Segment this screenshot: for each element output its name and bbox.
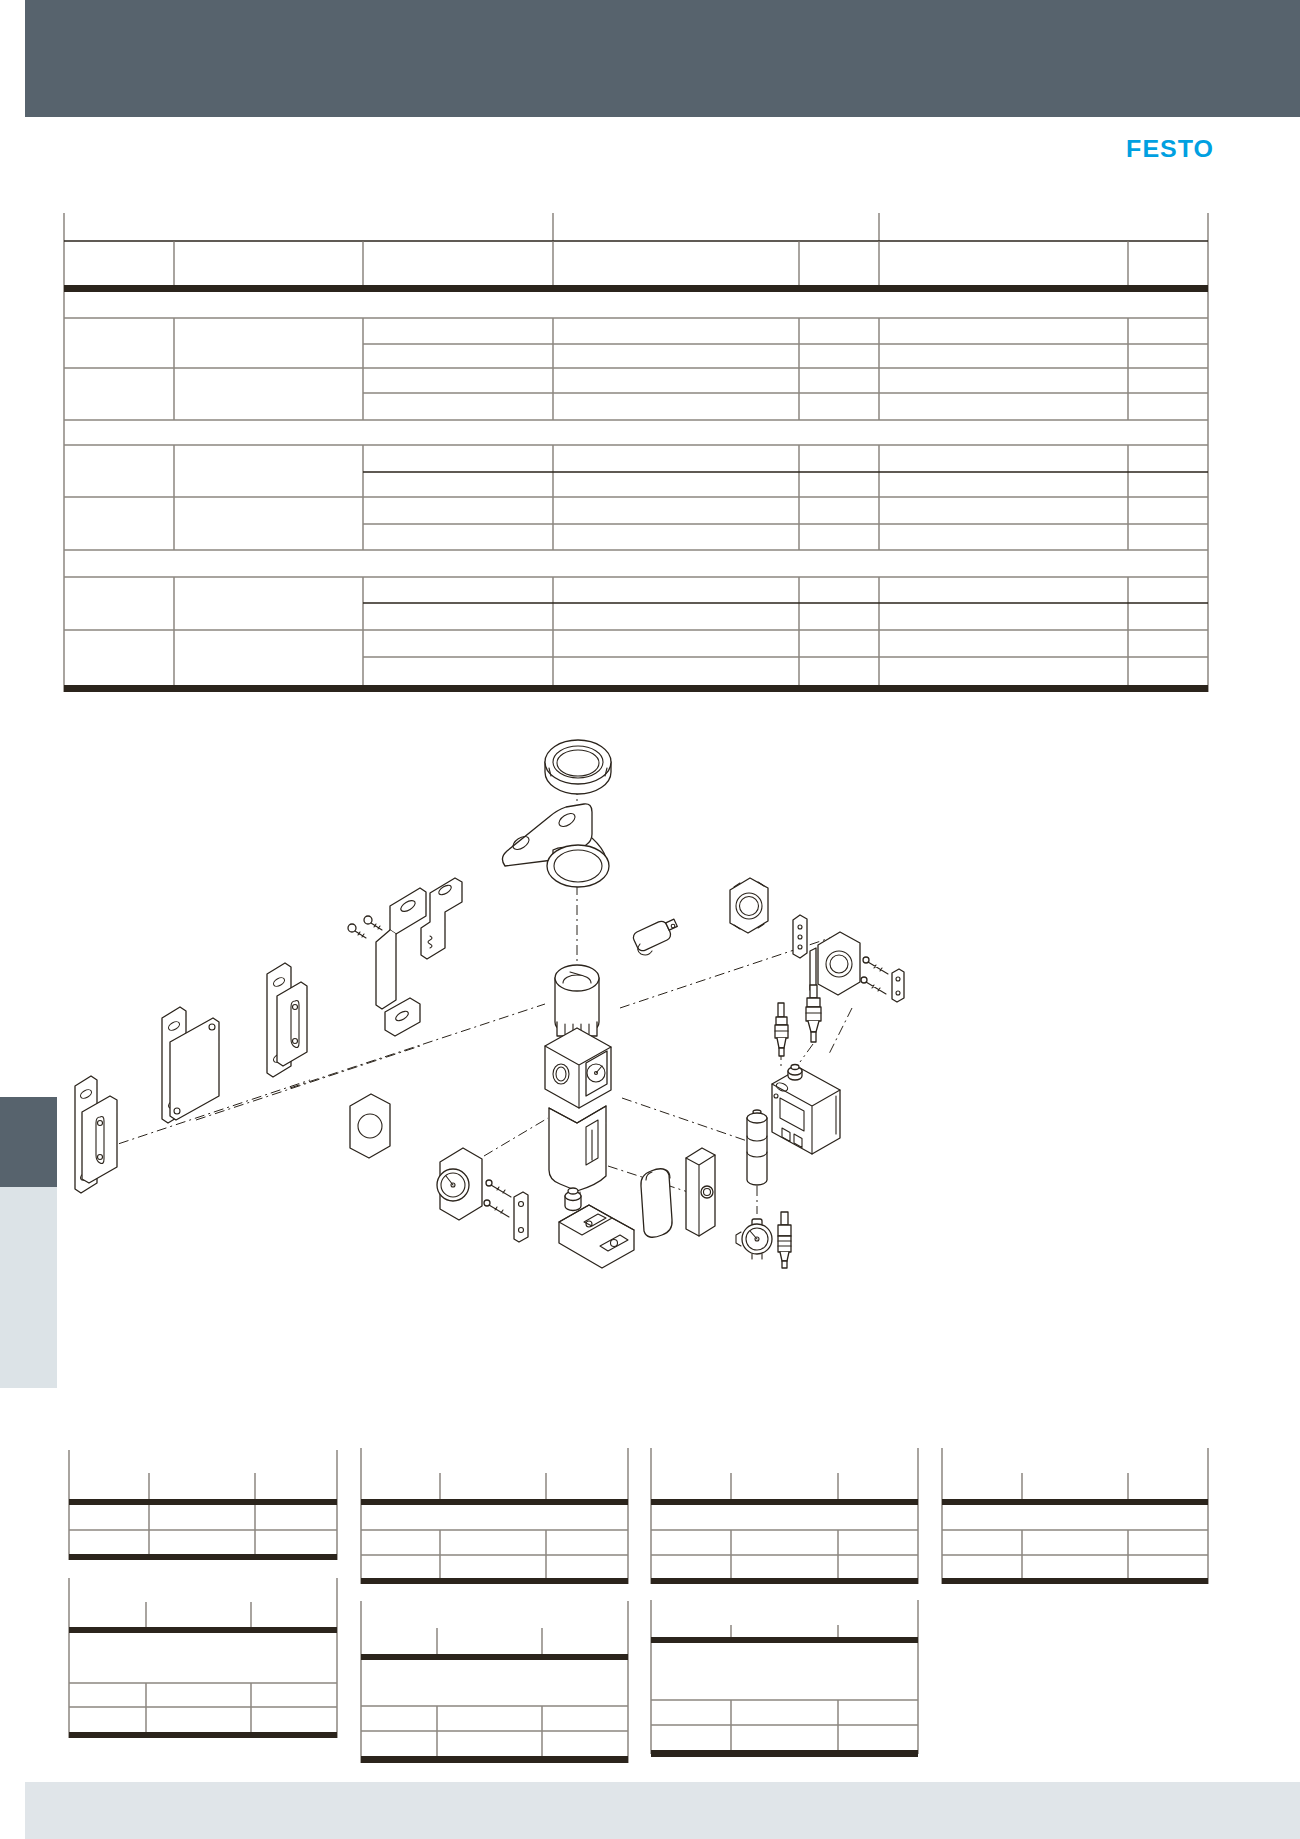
clamp-bolts-part — [861, 957, 888, 994]
cable-clip-part — [631, 919, 677, 955]
soft-start-valve-unit-part — [559, 1188, 634, 1268]
filter-regulator-unit-part — [545, 965, 611, 1205]
accessory-table-7 — [651, 1600, 918, 1757]
pressure-sensor-unit-part — [772, 1065, 840, 1155]
clamp-end-plate-part — [892, 969, 904, 1002]
accessory-table-2 — [361, 1448, 628, 1584]
gauge-mounting-bolts-part — [484, 1180, 511, 1217]
module-connector-plate-part — [730, 878, 768, 933]
wall-mounting-plate-small-part — [75, 1076, 117, 1193]
accessory-table-1 — [69, 1450, 337, 1560]
catalog-page: FESTO — [0, 0, 1300, 1839]
exploded-accessories-diagram — [75, 740, 904, 1268]
accessory-table-3 — [651, 1448, 918, 1584]
main-ordering-table — [64, 213, 1208, 692]
plug-connector-small-part — [775, 1003, 788, 1056]
wall-mounting-plate-medium-part — [162, 1007, 219, 1123]
push-button-module-part — [686, 1148, 715, 1236]
mounting-bracket-part — [502, 804, 609, 887]
regulator-knob — [555, 965, 599, 1036]
cover-plate-part — [350, 1094, 390, 1158]
assembly-axis-lines — [100, 785, 852, 1214]
plug-socket-connector-part — [778, 1212, 791, 1268]
gauge-mounting-plate-part — [514, 1192, 528, 1242]
accessory-table-4 — [942, 1448, 1208, 1584]
protective-cover-part — [641, 1169, 672, 1238]
spacer-plate-part — [793, 915, 807, 958]
accessory-table-6 — [361, 1601, 628, 1763]
angle-bracket-set-part — [348, 878, 462, 1036]
plug-connector-large-part — [806, 985, 821, 1042]
accessory-table-5 — [69, 1578, 337, 1738]
cartridge-module-part — [747, 1110, 767, 1185]
page-graphics — [0, 0, 1300, 1839]
wall-mounting-plate-large-part — [267, 963, 307, 1077]
module-clamp-unit-part — [810, 932, 904, 1002]
pressure-gauge-part — [437, 1148, 528, 1242]
pressure-indicator-part — [736, 1219, 772, 1259]
ring-lock-nut-part — [545, 740, 611, 794]
